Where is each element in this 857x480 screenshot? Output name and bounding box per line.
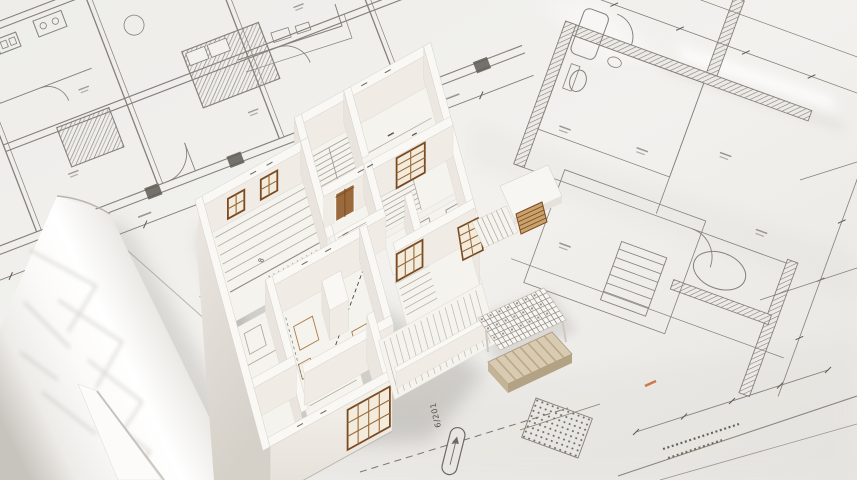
photo-architectural-model: 6/201 8 (0, 0, 857, 480)
scene-photo: 6/201 8 (0, 0, 857, 480)
